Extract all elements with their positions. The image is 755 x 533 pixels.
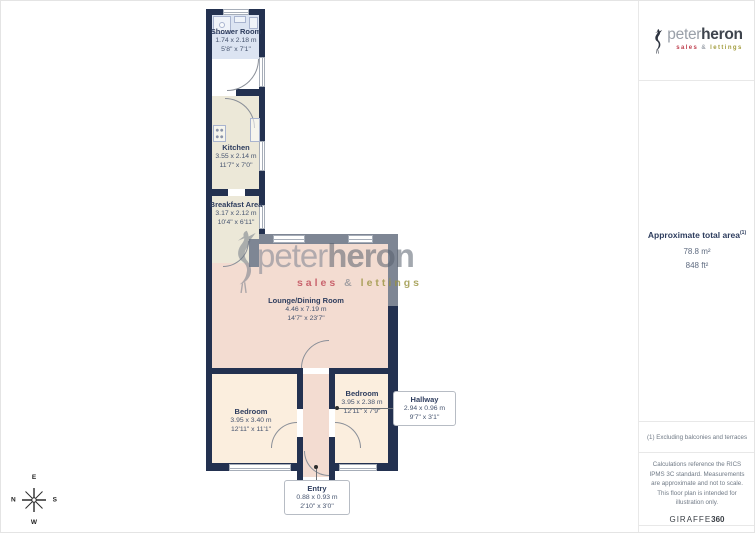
callout-dot [335, 406, 339, 410]
wall [388, 234, 398, 306]
wall [206, 9, 212, 471]
shower-drain-icon [219, 22, 225, 28]
compass-south-label: S [53, 497, 57, 504]
total-area-ft2: 848 ft² [686, 259, 709, 273]
footnote-text: (1) Excluding balconies and terraces [647, 434, 747, 441]
wall [249, 239, 259, 267]
wall [388, 306, 398, 471]
compass-star-icon [14, 480, 54, 520]
window [223, 9, 249, 15]
info-sidebar: peterheron sales & lettings Approximate … [638, 1, 755, 533]
sink-icon [234, 16, 246, 23]
disclaimer-text: Calculations reference the RICS IPMS 3C … [648, 460, 746, 508]
room-name: Hallway [396, 395, 453, 405]
logo: peterheron sales & lettings [651, 27, 742, 54]
compass-rose: E S W N [9, 473, 59, 527]
wall [245, 189, 265, 196]
logo-peter: peter [667, 26, 701, 43]
hallway-callout: Hallway 2.94 x 0.96 m 9'7" x 3'1" [393, 391, 456, 426]
window [259, 57, 265, 87]
door-arc [227, 59, 259, 91]
room-dim-metric: 2.94 x 0.96 m [396, 405, 453, 414]
wall [297, 437, 303, 463]
total-area-panel: Approximate total area(1) 78.8 m² 848 ft… [639, 81, 755, 422]
disclaimer-panel: Calculations reference the RICS IPMS 3C … [639, 453, 755, 526]
window [273, 235, 305, 243]
logo-sales: sales [676, 45, 698, 51]
wall [329, 368, 388, 374]
total-area-m2: 78.8 m² [683, 245, 710, 259]
giraffe360-brand: GIRAFFE360 [648, 514, 746, 526]
room-dim-metric: 0.88 x 0.93 m [287, 494, 347, 503]
room-dim-imperial: 9'7" x 3'1" [396, 414, 453, 423]
total-area-title-text: Approximate total area [648, 230, 740, 240]
window [259, 205, 265, 229]
logo-wordmark: peterheron [667, 27, 742, 43]
total-area-title: Approximate total area(1) [648, 230, 746, 240]
room-name: Entry [287, 484, 347, 494]
window [348, 235, 373, 243]
bedroom2-floor [335, 374, 388, 463]
floorplan-page: Shower Room 1.74 x 2.18 m 5'8" x 7'1" Ki… [0, 0, 755, 533]
callout-dot [314, 465, 318, 469]
callout-connector [337, 408, 393, 409]
compass-east-label: E [32, 474, 36, 481]
total-area-footnote-ref: (1) [740, 230, 746, 236]
bedroom1-floor [212, 374, 297, 463]
hob-icon [213, 125, 226, 142]
kitchen-unit-icon [250, 118, 260, 142]
window [229, 464, 291, 471]
logo-amp: & [701, 45, 707, 51]
logo-lettings: lettings [710, 45, 743, 51]
brand-360: 360 [711, 515, 724, 524]
compass-west-label: W [31, 519, 37, 526]
wall [297, 368, 303, 409]
logo-heron: heron [701, 26, 743, 43]
room-dim-imperial: 2'10" x 3'0" [287, 503, 347, 512]
wall [206, 189, 228, 196]
window [339, 464, 377, 471]
logo-tagline: sales & lettings [676, 45, 742, 51]
heron-icon [651, 28, 665, 54]
wall [329, 368, 335, 409]
wall [297, 471, 303, 480]
brand-giraffe: GIRAFFE [669, 515, 711, 524]
entry-callout: Entry 0.88 x 0.93 m 2'10" x 3'0" [284, 480, 350, 515]
window [259, 141, 265, 171]
toilet-icon [249, 17, 258, 29]
wall [236, 89, 265, 96]
wall [329, 471, 335, 480]
agency-logo: peterheron sales & lettings [639, 1, 755, 81]
wall [212, 368, 303, 374]
compass-north-label: N [11, 497, 16, 504]
footnote-panel: (1) Excluding balconies and terraces [639, 422, 755, 453]
